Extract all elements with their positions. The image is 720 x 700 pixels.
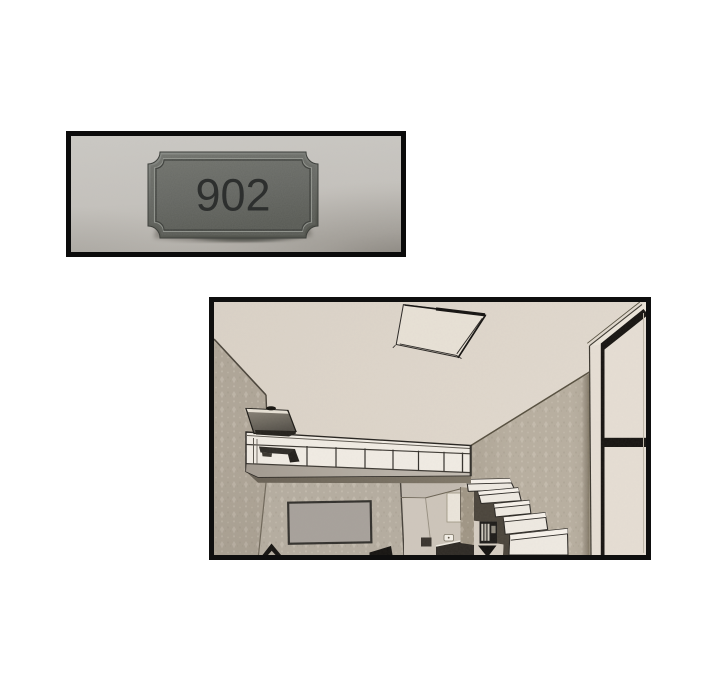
svg-text:902: 902 bbox=[195, 170, 270, 221]
